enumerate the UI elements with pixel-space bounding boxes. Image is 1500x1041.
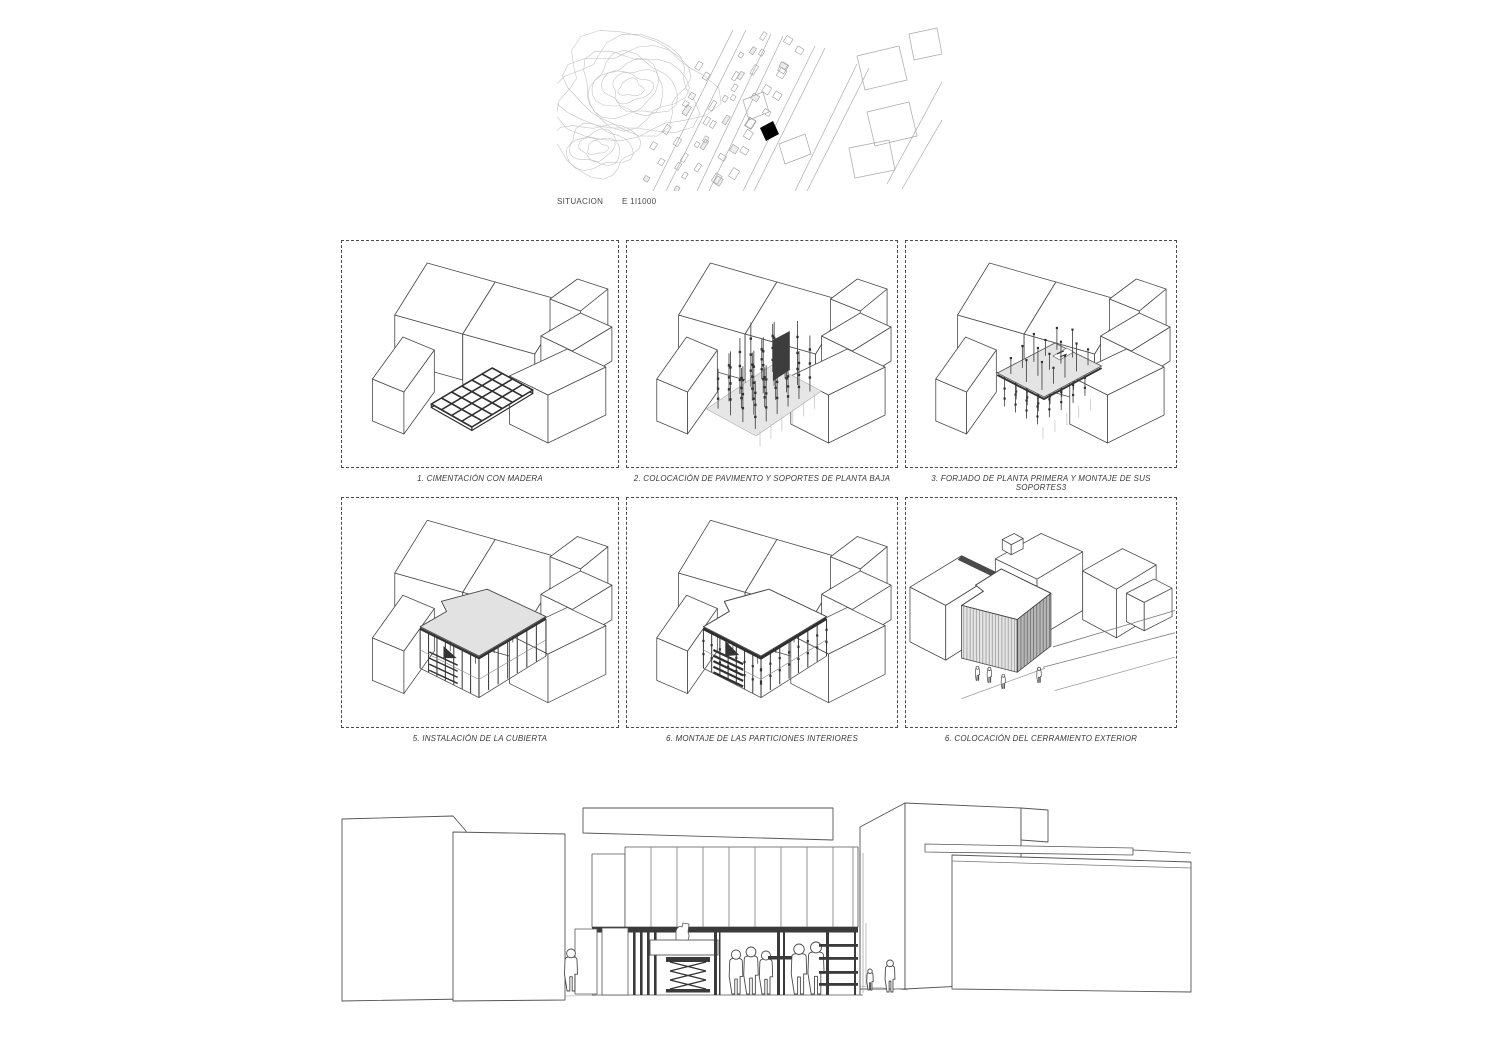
panel-caption-1: 1. CIMENTACIÓN CON MADERA — [341, 474, 619, 483]
axonometric-diagram-foundation — [342, 241, 618, 467]
axonometric-diagram-roof — [342, 498, 618, 727]
panel-frame-4 — [341, 497, 619, 728]
panel-frame-2 — [626, 240, 898, 468]
panel-caption-2: 2. COLOCACIÓN DE PAVIMENTO Y SOPORTES DE… — [626, 474, 898, 483]
panel-frame-3 — [905, 240, 1177, 468]
panel-frame-6 — [905, 497, 1177, 728]
street-elevation-drawing — [340, 793, 1192, 1039]
architectural-drawing-sheet: SITUACION E 1I1000 1. CIMENTACIÓN CON MA… — [0, 0, 1500, 1041]
axonometric-diagram-exterior-cladding — [906, 498, 1176, 727]
panel-frame-5 — [626, 497, 898, 728]
axonometric-diagram-pavement-posts — [627, 241, 897, 467]
panel-caption-3: 3. FORJADO DE PLANTA PRIMERA Y MONTAJE D… — [905, 474, 1177, 492]
map-title: SITUACION — [557, 197, 603, 206]
axonometric-diagram-first-floor-slab — [906, 241, 1176, 467]
site-map-drawing — [557, 24, 942, 191]
panel-caption-6: 6. COLOCACIÓN DEL CERRAMIENTO EXTERIOR — [905, 734, 1177, 743]
axonometric-diagram-interior-partitions — [627, 498, 897, 727]
panel-caption-5: 6. MONTAJE DE LAS PARTICIONES INTERIORES — [626, 734, 898, 743]
panel-caption-4: 5. INSTALACIÓN DE LA CUBIERTA — [341, 734, 619, 743]
panel-frame-1 — [341, 240, 619, 468]
map-scale: E 1I1000 — [622, 197, 656, 206]
site-map-caption: SITUACION E 1I1000 — [557, 197, 957, 206]
